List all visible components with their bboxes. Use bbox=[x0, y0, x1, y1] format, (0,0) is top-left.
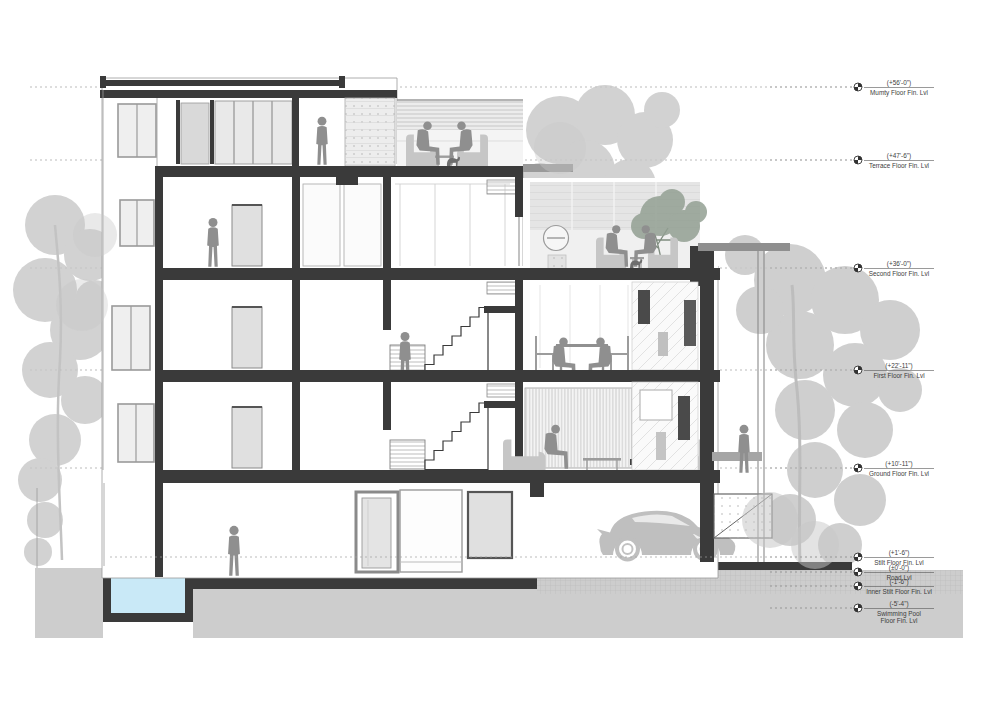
level-marker-icon bbox=[854, 156, 862, 164]
stair-flight-upper-hatch bbox=[487, 180, 518, 194]
level-elevation: (+36'-0") bbox=[887, 260, 911, 268]
stilt-column bbox=[155, 483, 163, 577]
entrance-glazing bbox=[400, 490, 462, 572]
porch-landing bbox=[712, 452, 762, 461]
facade-window-first bbox=[112, 306, 150, 370]
stilt-window bbox=[468, 492, 512, 558]
ground-cabinetry-wall bbox=[632, 382, 698, 470]
mumty-roof-slab bbox=[100, 90, 397, 98]
roof-parapet bbox=[102, 80, 345, 86]
level-marker-mumty: (+56'-0")Mumty Floor Fin. Lvl bbox=[770, 79, 934, 97]
level-label: Inner Stilt Floor Fin. Lvl bbox=[866, 588, 932, 595]
ground-floor-slab bbox=[155, 470, 720, 483]
level-label-line2: Floor Fin. Lvl bbox=[881, 617, 918, 624]
level-marker-icon bbox=[854, 582, 862, 590]
level-elevation: (-5'-4") bbox=[889, 600, 908, 608]
level-marker-icon bbox=[854, 366, 862, 374]
level-label: First Floor Fin. Lvl bbox=[873, 372, 924, 379]
first-cabinetry-wall bbox=[632, 282, 698, 370]
mumty-door bbox=[176, 100, 214, 164]
level-label: Mumty Floor Fin. Lvl bbox=[870, 89, 928, 97]
first-room-door bbox=[232, 307, 262, 368]
level-marker-terrace: (+47'-6")Terrace Floor Fin. Lvl bbox=[770, 152, 934, 169]
facade-window-mumty bbox=[118, 104, 156, 157]
first-floor-slab bbox=[155, 370, 720, 382]
level-marker-icon bbox=[854, 464, 862, 472]
entry-canopy bbox=[698, 243, 790, 251]
level-elevation: (+56'-0") bbox=[887, 79, 911, 87]
ground-room-door bbox=[232, 407, 262, 468]
level-marker-icon bbox=[854, 568, 862, 576]
wall-clock-circle bbox=[544, 226, 569, 251]
level-marker-icon bbox=[854, 264, 862, 272]
level-elevation: (-1'-6") bbox=[889, 578, 908, 586]
level-marker-icon bbox=[854, 604, 862, 612]
level-label: Terrace Floor Fin. Lvl bbox=[869, 162, 929, 169]
level-label: Second Floor Fin. Lvl bbox=[869, 270, 929, 277]
facade-window-ground bbox=[118, 404, 154, 462]
level-label: Ground Floor Fin. Lvl bbox=[869, 470, 929, 477]
right-boundary-wall bbox=[700, 470, 714, 562]
level-elevation: (+1'-6") bbox=[889, 549, 910, 557]
building-section-drawing: (+56'-0")Mumty Floor Fin. Lvl(+47'-6")Te… bbox=[0, 0, 1000, 707]
mumty-glazed-partition bbox=[215, 101, 292, 164]
facade-window-second bbox=[120, 200, 154, 246]
level-marker-icon bbox=[854, 83, 862, 91]
terrace-floor-slab bbox=[155, 166, 523, 177]
person-porch bbox=[738, 425, 749, 473]
mumty-textured-wall bbox=[345, 98, 395, 166]
section-drawing-page: (+56'-0")Mumty Floor Fin. Lvl(+47'-6")Te… bbox=[0, 0, 1000, 707]
second-bedroom-door bbox=[232, 205, 262, 266]
second-floor-slab bbox=[155, 268, 720, 280]
level-elevation: (+22'-11") bbox=[885, 362, 912, 370]
level-marker-icon bbox=[854, 553, 862, 561]
level-elevation: (+47'-6") bbox=[887, 152, 911, 160]
level-elevation: (±0'-0") bbox=[889, 564, 910, 572]
inner-stilt-slab bbox=[193, 577, 537, 589]
level-elevation: (+10'-11") bbox=[885, 460, 912, 468]
